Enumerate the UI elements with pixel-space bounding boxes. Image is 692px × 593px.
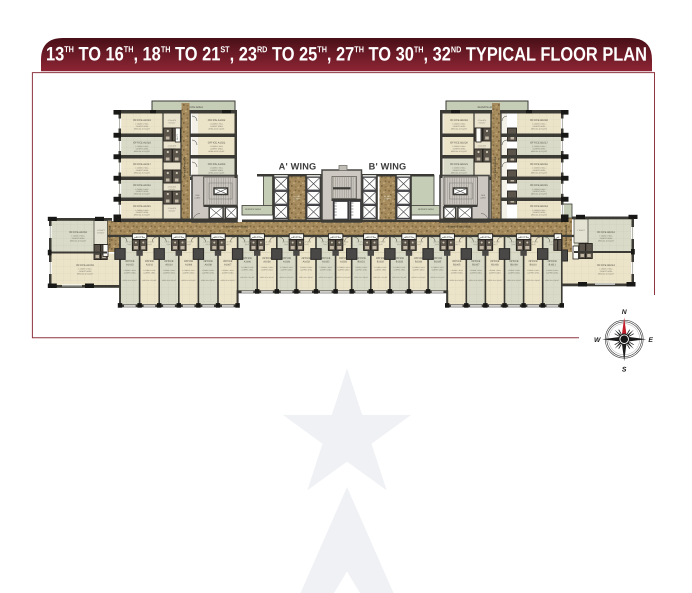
svg-text:1.6 M WIDE PASSAGE: 1.6 M WIDE PASSAGE: [446, 226, 471, 229]
svg-text:S: S: [622, 367, 627, 374]
svg-text:LOBBY: LOBBY: [480, 196, 487, 199]
svg-text:B1031: B1031: [358, 261, 366, 264]
svg-text:A1033: A1033: [303, 261, 311, 264]
svg-text:DUCT: DUCT: [215, 236, 222, 239]
svg-text:LOBBY: LOBBY: [384, 198, 391, 201]
svg-text:AREA 34.10 SQ.MT.: AREA 34.10 SQ.MT.: [208, 150, 225, 153]
svg-text:5'0"X4'0": 5'0"X4'0": [97, 232, 105, 235]
svg-text:CARPET AREA: CARPET AREA: [144, 272, 157, 275]
svg-text:B1007: B1007: [472, 264, 480, 267]
svg-text:AREA 34.10 SQ.MT.: AREA 34.10 SQ.MT.: [134, 127, 151, 130]
svg-text:OFFICE A1022: OFFICE A1022: [208, 119, 226, 122]
svg-text:AREA 20.4 SQ.MT.: AREA 20.4 SQ.MT.: [488, 279, 503, 282]
svg-text:AREA 34.10 SQ.MT.: AREA 34.10 SQ.MT.: [598, 239, 615, 242]
svg-text:AREA 20.4 SQ.MT.: AREA 20.4 SQ.MT.: [123, 279, 138, 282]
svg-text:AREA 34.10 SQ.MT.: AREA 34.10 SQ.MT.: [531, 150, 548, 153]
svg-text:AREA 34.10 SQ.MT.: AREA 34.10 SQ.MT.: [134, 214, 151, 217]
svg-text:A1011: A1011: [146, 264, 154, 267]
svg-text:A1036: A1036: [263, 261, 271, 264]
svg-text:OFFICE: OFFICE: [282, 257, 291, 260]
svg-text:2.4 M WIDE PASSAGE: 2.4 M WIDE PASSAGE: [224, 226, 249, 229]
svg-text:5'0"X4'0": 5'0"X4'0": [169, 147, 176, 150]
svg-text:OFFICE A1021: OFFICE A1021: [208, 142, 226, 145]
svg-text:CARPET AREA: CARPET AREA: [222, 272, 235, 275]
svg-text:W: W: [594, 337, 601, 344]
svg-text:1 TOILET: 1 TOILET: [577, 229, 586, 232]
svg-text:DUCT: DUCT: [406, 236, 413, 239]
svg-text:AREA 20.4 SQ.MT.: AREA 20.4 SQ.MT.: [221, 279, 236, 282]
svg-text:AREA 20.4 SQ.MT.: AREA 20.4 SQ.MT.: [430, 276, 445, 279]
svg-text:OFFICE A1004: OFFICE A1004: [69, 231, 87, 234]
svg-text:AREA 20.4 SQ.MT.: AREA 20.4 SQ.MT.: [392, 276, 407, 279]
svg-text:OFFICE: OFFICE: [357, 257, 366, 260]
svg-text:CARPET AREA: CARPET AREA: [413, 269, 426, 272]
svg-text:AREA 20.4 SQ.MT.: AREA 20.4 SQ.MT.: [545, 279, 560, 282]
svg-text:CARPET AREA: CARPET AREA: [338, 269, 351, 272]
svg-text:AREA 34.10 SQ.MT.: AREA 34.10 SQ.MT.: [451, 127, 468, 130]
svg-text:B1034: B1034: [415, 261, 423, 264]
svg-text:CARPET AREA: CARPET AREA: [183, 272, 196, 275]
svg-text:CARPET AREA: CARPET AREA: [394, 269, 407, 272]
svg-text:B1010: B1010: [530, 264, 538, 267]
svg-text:5'0"X4'0": 5'0"X4'0": [479, 147, 486, 150]
svg-text:AREA 34.10 SQ.MT.: AREA 34.10 SQ.MT.: [134, 150, 151, 153]
svg-text:OFFICE: OFFICE: [262, 257, 271, 260]
svg-text:A1013: A1013: [126, 264, 134, 267]
svg-text:AREA 34.10 SQ.MT.: AREA 34.10 SQ.MT.: [531, 127, 548, 130]
svg-text:5'0"X4'0": 5'0"X4'0": [169, 121, 176, 124]
svg-text:CARPET AREA: CARPET AREA: [451, 272, 464, 275]
svg-text:CARPET AREA: CARPET AREA: [355, 269, 368, 272]
svg-text:DUCT: DUCT: [254, 236, 261, 239]
svg-text:A' WING: A' WING: [279, 161, 317, 171]
svg-text:OFFICE: OFFICE: [243, 257, 252, 260]
svg-text:AREA 20.4 SQ.MT.: AREA 20.4 SQ.MT.: [319, 276, 334, 279]
svg-text:CARPET AREA: CARPET AREA: [242, 269, 255, 272]
svg-text:DUCT: DUCT: [482, 236, 489, 239]
svg-text:AREA 20.4 SQ.MT.: AREA 20.4 SQ.MT.: [240, 276, 255, 279]
svg-text:CARPET AREA: CARPET AREA: [375, 269, 388, 272]
svg-text:B1035: B1035: [434, 261, 442, 264]
svg-text:OFFICE: OFFICE: [125, 260, 134, 263]
svg-text:A1007: A1007: [224, 264, 232, 267]
svg-text:B1009: B1009: [510, 264, 518, 267]
svg-text:AREA 34.10 SQ.MT.: AREA 34.10 SQ.MT.: [77, 272, 94, 275]
svg-text:DUCT: DUCT: [136, 236, 143, 239]
svg-text:E: E: [648, 337, 653, 344]
svg-text:OFFICE B1021: OFFICE B1021: [450, 163, 468, 166]
svg-text:N: N: [622, 309, 628, 316]
svg-text:CARPET AREA: CARPET AREA: [546, 272, 559, 275]
svg-text:OFFICE: OFFICE: [414, 257, 423, 260]
svg-text:B1 LIFT: B1 LIFT: [384, 195, 392, 198]
svg-text:OFFICE B1016: OFFICE B1016: [530, 163, 548, 166]
svg-text:CARPET AREA: CARPET AREA: [124, 272, 137, 275]
svg-text:OFFICE A1016: OFFICE A1016: [133, 184, 151, 187]
svg-text:SERVICE AREA: SERVICE AREA: [418, 208, 435, 211]
svg-text:AREA 20.4 SQ.MT.: AREA 20.4 SQ.MT.: [450, 279, 465, 282]
svg-text:OFFICE B1019: OFFICE B1019: [450, 119, 468, 122]
svg-text:CARPET AREA: CARPET AREA: [300, 269, 313, 272]
svg-text:OFFICE: OFFICE: [471, 260, 480, 263]
svg-text:AREA 34.10 SQ.MT.: AREA 34.10 SQ.MT.: [598, 272, 615, 275]
svg-text:OFFICE A1017: OFFICE A1017: [133, 163, 151, 166]
svg-text:OFFICE A1015: OFFICE A1015: [133, 205, 151, 208]
svg-text:AREA 34.10 SQ.MT.: AREA 34.10 SQ.MT.: [208, 127, 225, 130]
svg-text:AREA 20.4 SQ.MT.: AREA 20.4 SQ.MT.: [526, 279, 541, 282]
svg-text:AREA 20.4 SQ.MT.: AREA 20.4 SQ.MT.: [411, 276, 426, 279]
svg-text:OFFICE B1013: OFFICE B1013: [597, 264, 615, 267]
svg-text:OFFICE A1003: OFFICE A1003: [76, 264, 94, 267]
svg-text:CARPET AREA: CARPET AREA: [261, 269, 274, 272]
svg-text:CARPET AREA: CARPET AREA: [163, 272, 176, 275]
svg-text:2.1 M WIDE PASSAGE: 2.1 M WIDE PASSAGE: [184, 156, 187, 179]
svg-text:OFFICE: OFFICE: [204, 260, 213, 263]
svg-text:OFFICE: OFFICE: [376, 257, 385, 260]
svg-text:AREA 20.4 SQ.MT.: AREA 20.4 SQ.MT.: [279, 276, 294, 279]
svg-text:AREA 34.10 SQ.MT.: AREA 34.10 SQ.MT.: [134, 193, 151, 196]
svg-text:OFFICE B1014: OFFICE B1014: [530, 205, 548, 208]
svg-text:AREA 20.4 SQ.MT.: AREA 20.4 SQ.MT.: [162, 279, 177, 282]
svg-text:AREA 34.10 SQ.MT.: AREA 34.10 SQ.MT.: [531, 214, 548, 217]
svg-text:DUCT: DUCT: [520, 236, 527, 239]
svg-text:OFFICE: OFFICE: [509, 260, 518, 263]
svg-text:AREA 20.4 SQ.MT.: AREA 20.4 SQ.MT.: [336, 276, 351, 279]
svg-text:OFFICE B1020: OFFICE B1020: [450, 142, 468, 145]
svg-text:AREA 20.4 SQ.MT.: AREA 20.4 SQ.MT.: [201, 279, 216, 282]
svg-text:OFFICE: OFFICE: [452, 260, 461, 263]
svg-text:DUCT: DUCT: [176, 133, 179, 139]
svg-text:DUCT: DUCT: [444, 236, 451, 239]
svg-text:AREA 34.10 SQ.MT.: AREA 34.10 SQ.MT.: [451, 171, 468, 174]
svg-text:2.1 M WIDE PASSAGE: 2.1 M WIDE PASSAGE: [494, 156, 497, 179]
svg-text:AREA 20.4 SQ.MT.: AREA 20.4 SQ.MT.: [354, 276, 369, 279]
svg-text:CARPET AREA: CARPET AREA: [281, 269, 294, 272]
svg-text:CARPET AREA: CARPET AREA: [527, 272, 540, 275]
svg-text:A1010: A1010: [165, 264, 173, 267]
svg-text:B1032: B1032: [377, 261, 385, 264]
svg-text:AREA 20.4 SQ.MT.: AREA 20.4 SQ.MT.: [299, 276, 314, 279]
svg-text:SERVICE AREA: SERVICE AREA: [245, 208, 262, 211]
svg-text:5'0"X4'0": 5'0"X4'0": [169, 209, 176, 212]
svg-text:LOBBY: LOBBY: [195, 196, 202, 199]
svg-text:AREA 20.4 SQ.MT.: AREA 20.4 SQ.MT.: [142, 279, 157, 282]
svg-text:A1032: A1032: [322, 261, 330, 264]
svg-text:5'0"X4'0": 5'0"X4'0": [479, 121, 486, 124]
svg-text:AREA 20.4 SQ.MT.: AREA 20.4 SQ.MT.: [260, 276, 275, 279]
svg-text:AREA 20.4 SQ.MT.: AREA 20.4 SQ.MT.: [181, 279, 196, 282]
svg-text:OFFICE: OFFICE: [321, 257, 330, 260]
svg-text:OFFICE B1017: OFFICE B1017: [530, 142, 548, 145]
svg-text:LOBBY: LOBBY: [294, 198, 301, 201]
svg-text:OFFICE: OFFICE: [302, 257, 311, 260]
svg-text:OFFICE B1018: OFFICE B1018: [530, 119, 548, 122]
svg-text:OFFICE: OFFICE: [223, 260, 232, 263]
svg-text:A1031: A1031: [340, 261, 348, 264]
svg-text:CARPET AREA: CARPET AREA: [489, 272, 502, 275]
svg-text:OFFICE B1012: OFFICE B1012: [597, 231, 615, 234]
svg-text:A1 LIFT: A1 LIFT: [293, 195, 301, 198]
svg-text:CARPET AREA: CARPET AREA: [320, 269, 333, 272]
svg-text:AREA 34.10 SQ.MT.: AREA 34.10 SQ.MT.: [531, 171, 548, 174]
svg-text:B1011: B1011: [549, 264, 557, 267]
svg-text:CARPET AREA: CARPET AREA: [508, 272, 521, 275]
svg-text:OFFICE: OFFICE: [395, 257, 404, 260]
svg-text:AREA 20.4 SQ.MT.: AREA 20.4 SQ.MT.: [507, 279, 522, 282]
svg-text:DUCT: DUCT: [332, 236, 339, 239]
svg-text:CARPET AREA: CARPET AREA: [432, 269, 445, 272]
svg-text:B1008: B1008: [491, 264, 499, 267]
svg-text:OFFICE: OFFICE: [433, 257, 442, 260]
svg-text:A1008: A1008: [205, 264, 213, 267]
svg-text:AREA 34.10 SQ.MT.: AREA 34.10 SQ.MT.: [451, 150, 468, 153]
svg-text:OFFICE: OFFICE: [164, 260, 173, 263]
svg-text:5'0"X4'0": 5'0"X4'0": [169, 188, 176, 191]
svg-text:OFFICE: OFFICE: [145, 260, 154, 263]
svg-text:AREA 20.4 SQ.MT.: AREA 20.4 SQ.MT.: [469, 279, 484, 282]
svg-text:A1034: A1034: [283, 261, 291, 264]
svg-text:OFFICE: OFFICE: [184, 260, 193, 263]
svg-text:AREA 34.10 SQ.MT.: AREA 34.10 SQ.MT.: [208, 171, 225, 174]
svg-text:OFFICE A1018: OFFICE A1018: [133, 142, 151, 145]
svg-text:AREA 34.10 SQ.MT.: AREA 34.10 SQ.MT.: [531, 193, 548, 196]
svg-text:AREA 20.4 SQ.MT.: AREA 20.4 SQ.MT.: [373, 276, 388, 279]
svg-text:DUCT: DUCT: [367, 236, 374, 239]
svg-text:OFFICE A1019: OFFICE A1019: [133, 119, 151, 122]
svg-text:DUCT: DUCT: [175, 236, 182, 239]
svg-text:B' WING: B' WING: [369, 161, 407, 171]
svg-text:B1005: B1005: [453, 264, 461, 267]
svg-text:CARPET AREA: CARPET AREA: [202, 272, 215, 275]
svg-text:OFFICE: OFFICE: [529, 260, 538, 263]
svg-text:CARPET AREA: CARPET AREA: [470, 272, 483, 275]
svg-text:AREA 34.10 SQ.MT.: AREA 34.10 SQ.MT.: [70, 239, 87, 242]
svg-text:OFFICE: OFFICE: [490, 260, 499, 263]
svg-text:OFFICE A1023: OFFICE A1023: [208, 163, 226, 166]
svg-text:B1033: B1033: [396, 261, 404, 264]
svg-text:AREA 34.10 SQ.MT.: AREA 34.10 SQ.MT.: [134, 171, 151, 174]
svg-text:DUCT: DUCT: [293, 236, 300, 239]
svg-text:OFFICE B1015: OFFICE B1015: [530, 184, 548, 187]
svg-text:13TH​ TO 16TH​, 18TH​ TO 21ST​: 13TH​ TO 16TH​, 18TH​ TO 21ST​, 23RD​ TO…: [46, 43, 647, 65]
svg-text:A1009: A1009: [185, 264, 193, 267]
svg-text:A1006: A1006: [244, 261, 252, 264]
svg-text:OFFICE: OFFICE: [548, 260, 557, 263]
